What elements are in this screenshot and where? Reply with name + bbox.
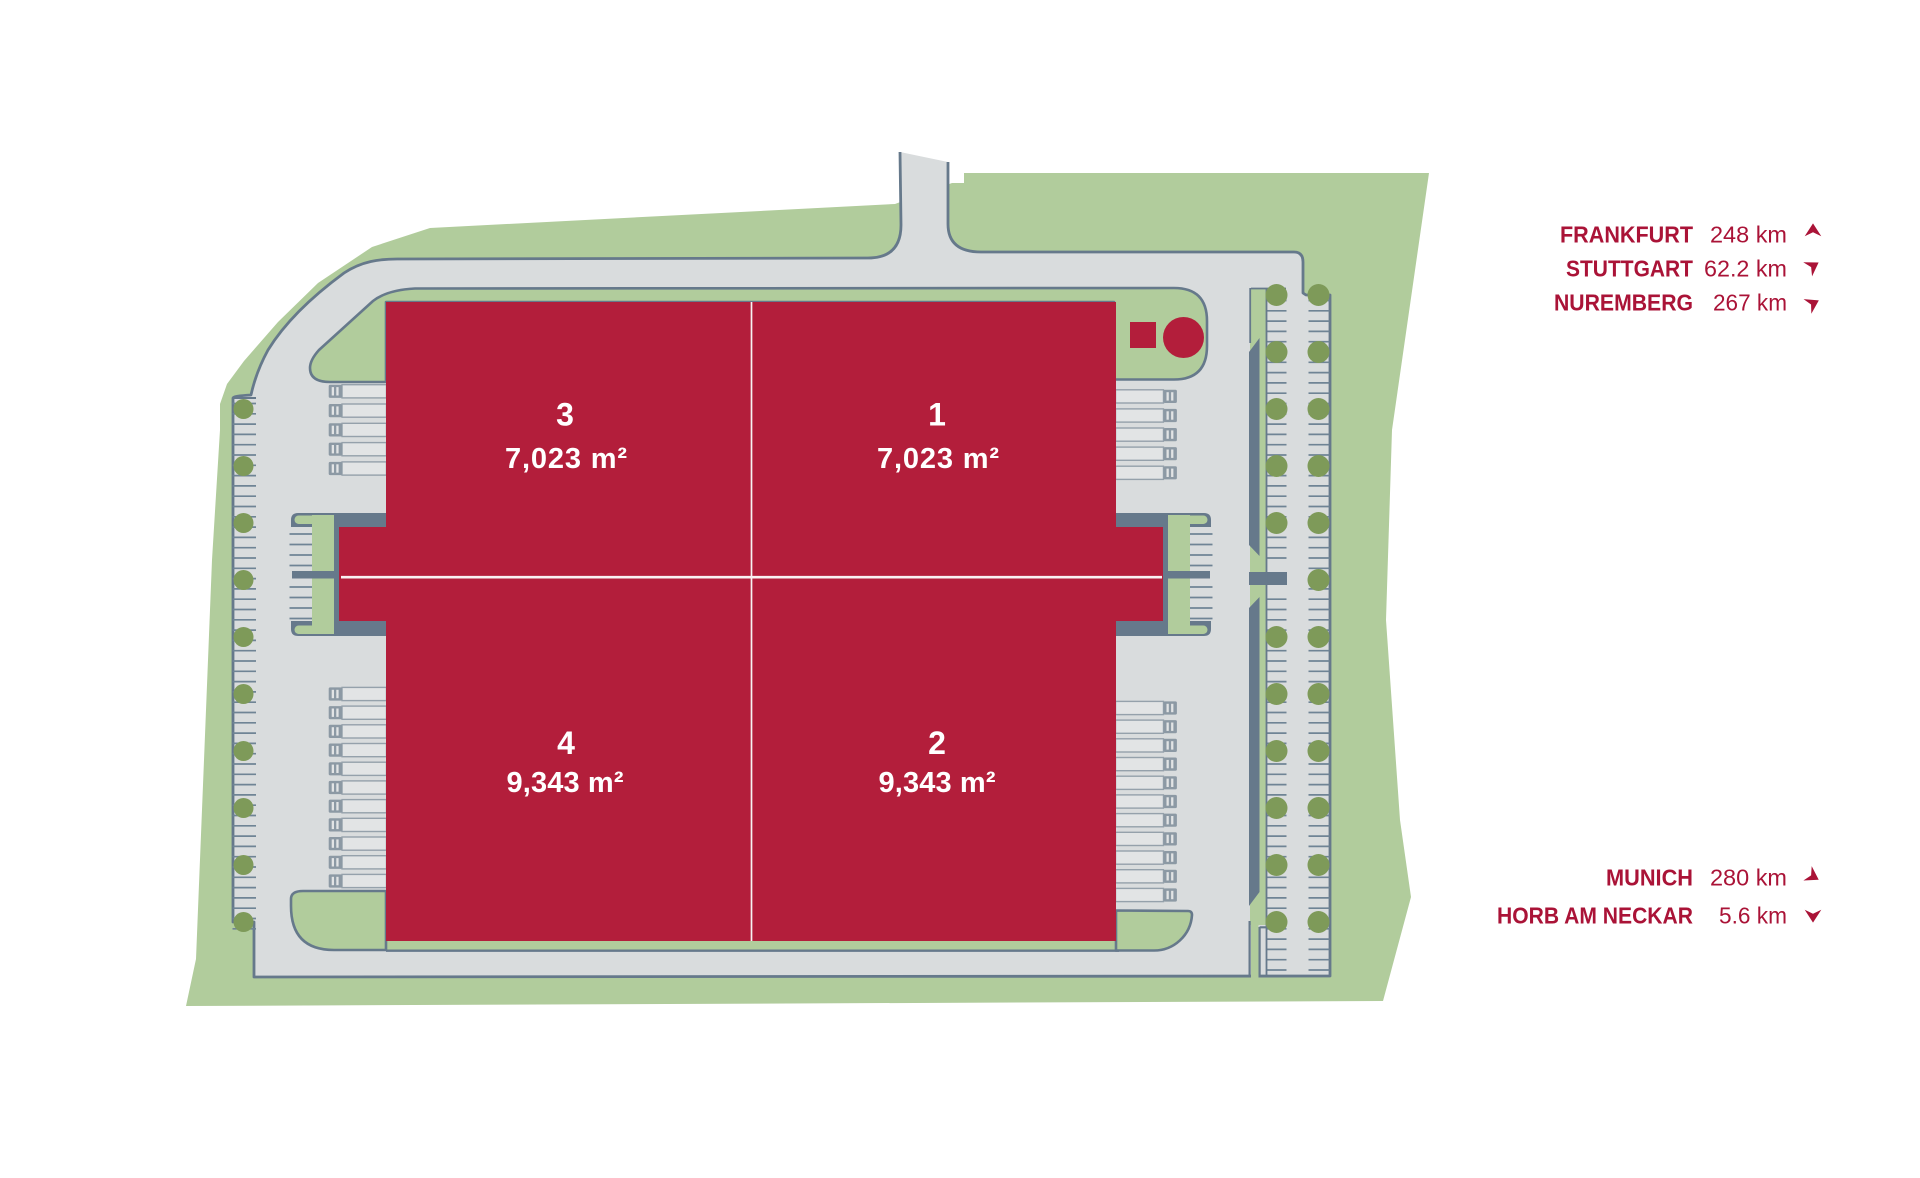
svg-text:7,023 m²: 7,023 m² xyxy=(877,443,999,475)
svg-text:267 km: 267 km xyxy=(1713,290,1787,316)
svg-text:7,023 m²: 7,023 m² xyxy=(505,443,627,475)
svg-text:MUNICH: MUNICH xyxy=(1606,865,1693,891)
svg-text:3: 3 xyxy=(556,397,574,433)
svg-text:62.2 km: 62.2 km xyxy=(1704,256,1787,282)
svg-text:280 km: 280 km xyxy=(1710,865,1787,891)
svg-text:248 km: 248 km xyxy=(1710,222,1787,248)
svg-text:4: 4 xyxy=(557,725,575,761)
svg-text:NUREMBERG: NUREMBERG xyxy=(1554,290,1693,316)
svg-text:9,343 m²: 9,343 m² xyxy=(507,767,624,799)
svg-text:FRANKFURT: FRANKFURT xyxy=(1560,222,1694,248)
svg-text:HORB AM NECKAR: HORB AM NECKAR xyxy=(1497,903,1693,929)
svg-text:STUTTGART: STUTTGART xyxy=(1566,256,1694,282)
svg-text:9,343 m²: 9,343 m² xyxy=(879,767,996,799)
svg-text:5.6 km: 5.6 km xyxy=(1719,903,1787,929)
svg-text:2: 2 xyxy=(928,725,946,761)
svg-text:1: 1 xyxy=(928,397,946,433)
